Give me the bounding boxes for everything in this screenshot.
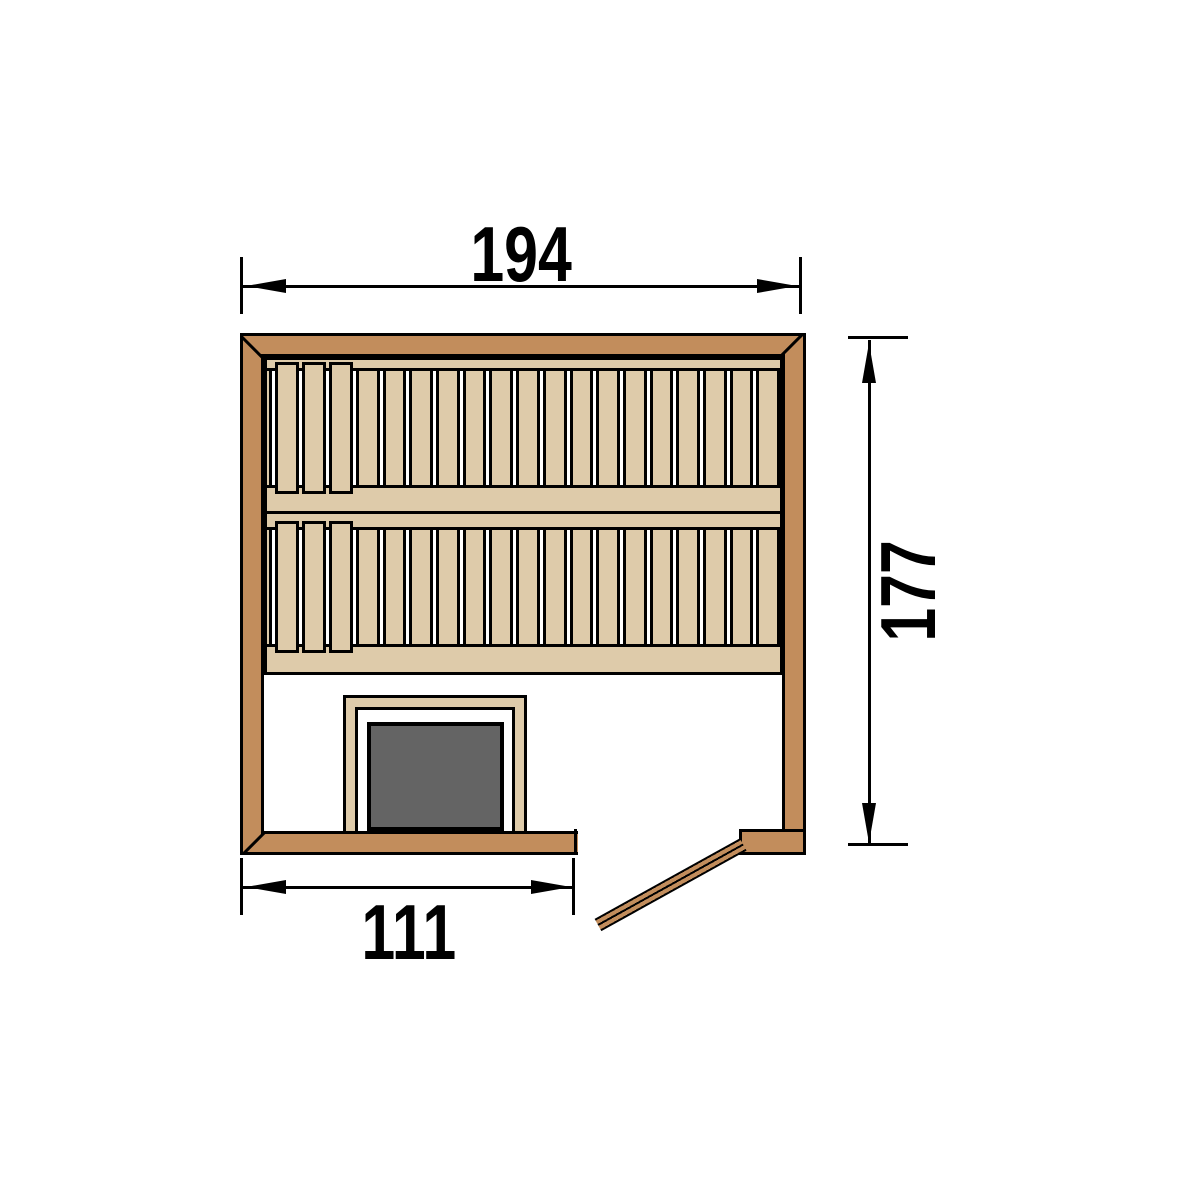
upper-bench-slat-row	[267, 368, 780, 488]
sauna-floor-plan-diagram: 194 177 111	[0, 0, 1200, 1200]
front-dim-label: 111	[243, 893, 574, 971]
bench-slat	[570, 371, 594, 485]
bench-slat	[703, 530, 727, 644]
bench-slat	[703, 371, 727, 485]
depth-dim-arrowhead-top	[862, 343, 876, 383]
bench-wide-slat	[329, 521, 353, 653]
depth-dim-tick-bottom	[848, 843, 908, 846]
bench-slat	[516, 371, 540, 485]
bench-wide-slat	[329, 362, 353, 494]
bench-slat	[436, 530, 460, 644]
front-wall-right-stub	[739, 829, 806, 855]
bench-slat	[516, 530, 540, 644]
bench-wide-slat	[302, 362, 326, 494]
bench-slat	[409, 530, 433, 644]
bench-slat	[463, 530, 487, 644]
bench-slat	[356, 371, 380, 485]
bench-slat	[676, 371, 700, 485]
depth-dim-arrowhead-bottom	[862, 803, 876, 843]
bench-slat	[570, 530, 594, 644]
bench-slat	[409, 371, 433, 485]
bench-slat	[756, 530, 780, 644]
bench-slat	[436, 371, 460, 485]
heater	[367, 722, 504, 831]
width-dim-label: 194	[243, 215, 800, 293]
bench-slat	[356, 530, 380, 644]
depth-dim-tick-top	[848, 336, 908, 339]
bench-slat	[383, 371, 407, 485]
bench-wide-slat	[302, 521, 326, 653]
front-dim-value: 111	[361, 893, 456, 971]
bench-wide-slat	[275, 521, 299, 653]
front-dim-arrowhead-right	[531, 880, 571, 894]
bench-slat	[730, 530, 754, 644]
bench-slat	[650, 371, 674, 485]
bench-slat	[676, 530, 700, 644]
bench-slat	[596, 530, 620, 644]
bench-slat	[383, 530, 407, 644]
bench-wide-slat	[275, 362, 299, 494]
bench-slat	[623, 371, 647, 485]
front-wall-end-cap	[574, 829, 577, 855]
bench-edge-strip	[267, 530, 272, 644]
bench-slat	[623, 530, 647, 644]
bench-slat	[650, 530, 674, 644]
bench-slat	[489, 530, 513, 644]
bench-slat	[730, 371, 754, 485]
bench-slat	[596, 371, 620, 485]
bench-slat	[489, 371, 513, 485]
lower-bench	[264, 514, 783, 675]
upper-bench	[264, 357, 783, 514]
width-dim-value: 194	[471, 215, 573, 293]
front-dim-arrowhead-left	[246, 880, 286, 894]
bench-slat	[543, 530, 567, 644]
lower-bench-slat-row	[267, 527, 780, 647]
depth-dim-label: 177	[869, 511, 947, 671]
bench-slat	[756, 371, 780, 485]
bench-slat	[463, 371, 487, 485]
bench-slat	[543, 371, 567, 485]
bench-edge-strip	[267, 371, 272, 485]
depth-dim-value: 177	[869, 540, 947, 642]
